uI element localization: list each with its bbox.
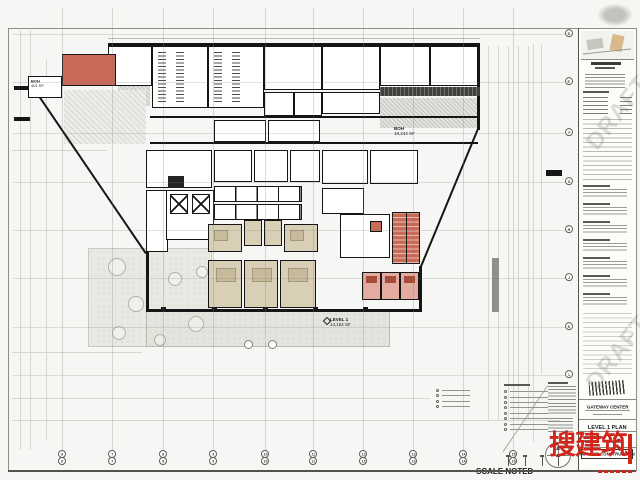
logo-tagline	[598, 470, 634, 473]
grid-bubble-row: H	[565, 226, 573, 233]
site-element	[492, 258, 499, 312]
project-subline	[585, 410, 630, 411]
corridor-wall	[150, 116, 478, 118]
room	[290, 150, 320, 182]
room	[264, 92, 294, 116]
tree-symbol	[112, 326, 126, 340]
boh-right-annotation: BOH 18,243 SF	[394, 126, 436, 147]
tb-divider	[579, 419, 636, 420]
section-marker	[14, 117, 30, 121]
consultant-block	[583, 221, 632, 237]
grid-bubble-column: 11 11	[309, 451, 317, 465]
grid-bubble-row: F	[565, 129, 573, 136]
general-notes-block	[548, 382, 576, 434]
lockers	[214, 52, 222, 102]
boh-left-area: 401 SF	[31, 84, 44, 89]
courtyard-hatch	[380, 98, 480, 128]
room	[322, 188, 364, 214]
logo-bar	[628, 434, 632, 464]
grid-bubble-column: 10 10	[261, 451, 269, 465]
level-area: 14,164 SF	[330, 322, 351, 327]
boh-left-annotation: BOH 401 SF	[31, 79, 57, 97]
info-table-header	[583, 91, 609, 93]
tree-symbol	[188, 316, 204, 332]
grid-bubble-column: 14 14	[459, 451, 467, 465]
furniture	[288, 268, 308, 282]
exterior-wall	[419, 266, 422, 311]
site-map-parcel	[586, 38, 603, 50]
room	[254, 150, 288, 182]
exterior-wall	[146, 252, 149, 312]
treatment-room	[264, 220, 282, 246]
title-block: GATEWAY CENTER LEVEL 1 PLAN A101 NOT FOR…	[579, 29, 636, 469]
grid-bubble-column: 12 12	[359, 451, 367, 465]
architect-logo	[591, 62, 621, 65]
grid-line-horizontal	[13, 82, 565, 83]
room	[322, 150, 368, 184]
grid-bubble-row: L	[565, 371, 573, 378]
grid-bubble-column: 9 9	[209, 451, 217, 465]
grid-bubble-row: E	[565, 78, 573, 85]
architect-address	[585, 74, 625, 88]
notes-paragraph	[548, 403, 576, 415]
legend-row	[436, 404, 470, 409]
column-circle	[244, 340, 253, 349]
room	[146, 190, 168, 252]
grid-bubble-row: J	[565, 274, 573, 281]
red-stair	[392, 212, 420, 264]
drawing-sheet: { "colors":{"logo-red":"#d2251c","room-r…	[0, 0, 640, 480]
toilet-row	[214, 204, 302, 220]
furniture	[252, 268, 272, 282]
consultant-block	[583, 293, 632, 309]
legend-block	[436, 388, 470, 410]
grid-bubble-row: D	[565, 30, 573, 37]
consultant-block	[583, 185, 632, 201]
lockers	[158, 52, 166, 102]
consultant-block	[583, 257, 632, 273]
grid-line-horizontal	[13, 230, 565, 231]
room	[430, 46, 478, 86]
project-subline	[593, 414, 622, 415]
room	[340, 214, 390, 258]
consultant-block	[583, 275, 632, 291]
keynote-row	[504, 427, 548, 432]
lockers	[232, 52, 240, 102]
elevator-shaft	[192, 194, 210, 214]
tree-symbol	[196, 266, 208, 278]
notes-paragraph	[548, 386, 576, 400]
toilet-row	[214, 186, 302, 202]
sheet-bottom-edge	[8, 470, 636, 472]
keynotes-block	[504, 384, 548, 432]
room	[322, 92, 380, 114]
scale-tick	[508, 457, 509, 466]
tree-symbol	[154, 334, 166, 346]
site-map	[581, 31, 634, 60]
grid-bubble-column: 8 8	[159, 451, 167, 465]
planter-strip	[380, 87, 480, 96]
consultant-block	[583, 203, 632, 219]
architect-logo	[595, 67, 615, 69]
boh-right-area: 18,243 SF	[394, 131, 415, 136]
lockers	[176, 52, 184, 102]
souzhujian-watermark-logo: 搜建筑	[549, 432, 627, 459]
elevator-shaft	[170, 194, 188, 214]
grid-line-horizontal	[13, 182, 565, 183]
grid-bubble-row: K	[565, 323, 573, 330]
grid-line-horizontal	[13, 278, 565, 279]
grid-bubble-column: 13 13	[409, 451, 417, 465]
furniture	[290, 230, 304, 241]
grid-line-horizontal	[13, 375, 565, 376]
exterior-wall	[146, 309, 422, 312]
grid-bubble-column: 7 7	[108, 451, 116, 465]
grid-line-horizontal	[13, 133, 565, 134]
grid-line-horizontal	[13, 327, 565, 328]
tb-divider	[579, 399, 636, 400]
grid-bubble-row: G	[565, 178, 573, 185]
corner-smudge	[598, 4, 632, 26]
level-annotation: LEVEL 1 14,164 SF	[330, 317, 372, 338]
keynotes-header	[504, 384, 530, 386]
furniture	[216, 268, 236, 282]
consultant-block	[583, 239, 632, 255]
scale-tick	[525, 457, 526, 466]
room	[370, 150, 418, 184]
room	[380, 46, 430, 86]
grid-line-horizontal	[13, 34, 565, 35]
room	[214, 120, 266, 142]
room	[294, 92, 322, 116]
grid-bubble-column: 6 6	[58, 451, 66, 465]
column-circle	[268, 340, 277, 349]
notes-header	[548, 382, 568, 384]
furniture	[214, 230, 228, 241]
treatment-room	[244, 220, 262, 246]
tree-symbol	[128, 296, 144, 312]
room	[214, 150, 252, 182]
room	[322, 46, 380, 90]
entry-path	[64, 90, 146, 144]
tree-symbol	[168, 272, 182, 286]
tree-symbol	[108, 258, 126, 276]
section-marker	[546, 170, 562, 176]
scale-tick	[542, 457, 543, 466]
